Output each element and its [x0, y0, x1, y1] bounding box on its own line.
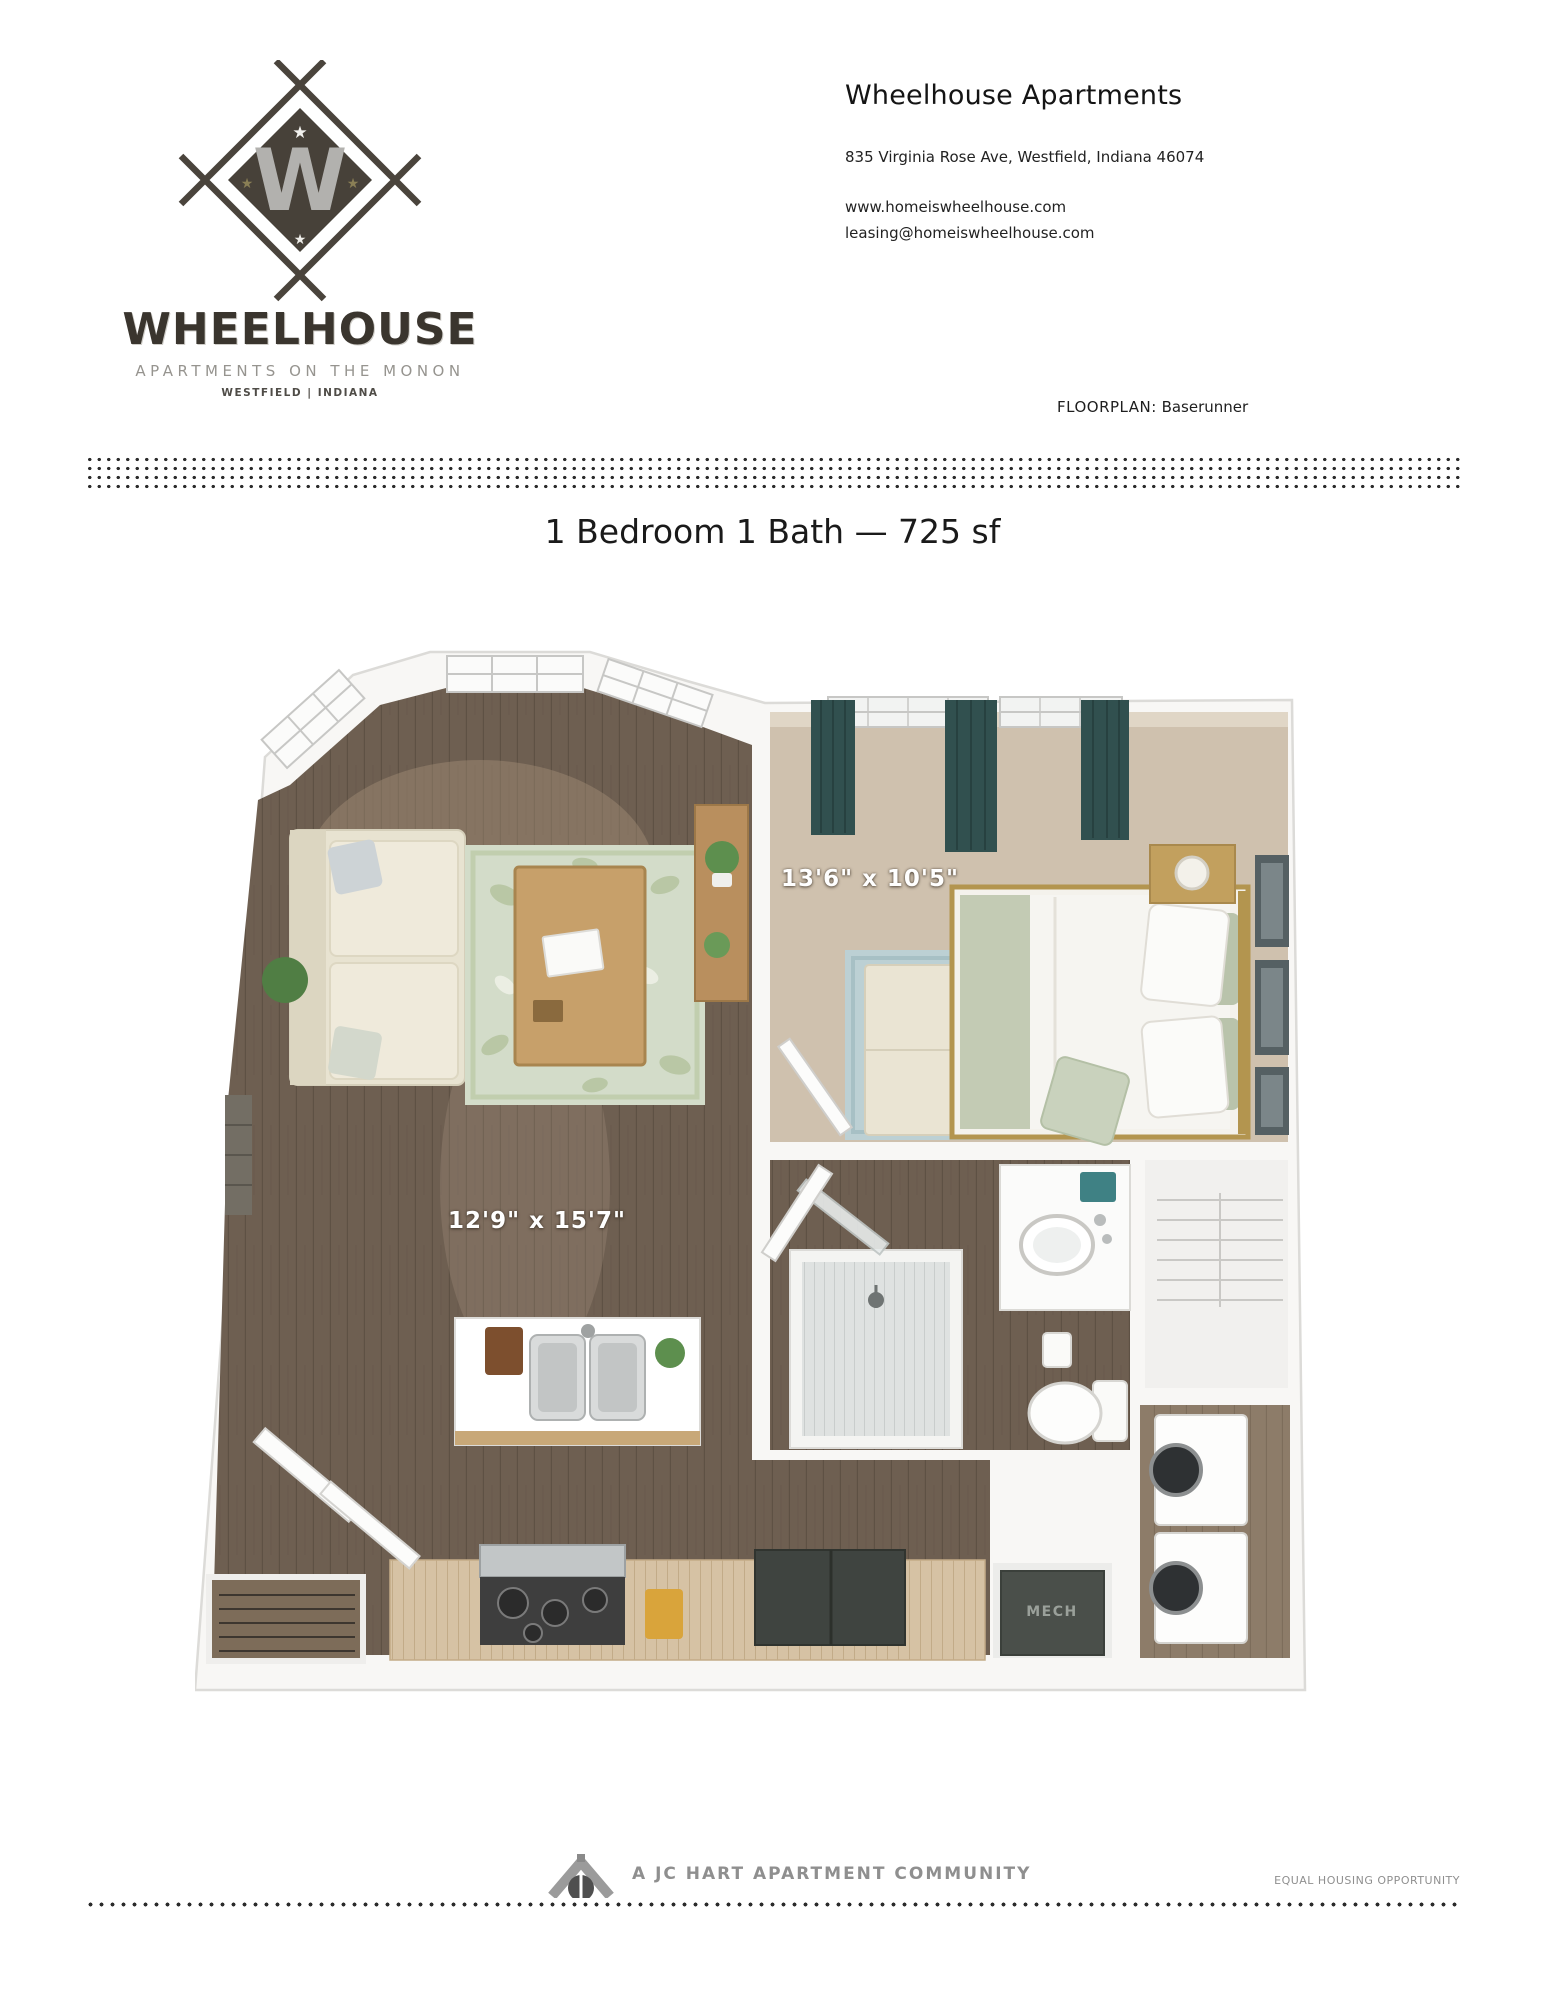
entry-closet: [209, 1577, 363, 1661]
property-address: 835 Virginia Rose Ave, Westfield, Indian…: [845, 148, 1204, 166]
wall-shelf: [225, 1095, 252, 1215]
shower: [790, 1250, 962, 1448]
floorplan-flyer-page: { "header": { "property_name": "Wheelhou…: [0, 0, 1545, 2000]
logo-location: WESTFIELD | INDIANA: [120, 387, 480, 399]
star-icon: ★: [294, 232, 307, 248]
floorplan-name-line: FLOORPLAN: Baserunner: [1057, 398, 1248, 416]
property-name: Wheelhouse Apartments: [845, 80, 1182, 111]
equal-housing-text: EQUAL HOUSING OPPORTUNITY: [1160, 1874, 1460, 1887]
star-icon: ★: [241, 176, 254, 192]
star-icon: ★: [292, 123, 307, 143]
kitchen-island: [455, 1318, 700, 1445]
island-plant: [655, 1338, 685, 1368]
living-dimension-label: 12'9" x 15'7": [412, 1208, 662, 1234]
footer-brand: A JC HART APARTMENT COMMUNITY: [548, 1848, 1031, 1900]
logo-monogram: W: [253, 131, 348, 231]
bay-window-center: [447, 656, 583, 692]
floorplan-rendering: [195, 645, 1310, 1700]
coffee-table: [515, 867, 645, 1065]
floorplan-name: Baserunner: [1162, 398, 1249, 416]
bedroom-dimension-label: 13'6" x 10'5": [745, 866, 995, 892]
console-cabinet: [695, 805, 748, 1001]
nightstand: [1150, 845, 1235, 903]
star-icon: ★: [347, 176, 360, 192]
toilet: [1029, 1381, 1127, 1443]
logo-wordmark: WHEELHOUSE: [120, 308, 480, 352]
refrigerator: [755, 1550, 905, 1645]
logo-diamond-mark: W ★ ★ ★ ★: [150, 60, 450, 302]
community-text: A JC HART APARTMENT COMMUNITY: [632, 1864, 1031, 1884]
closet-floor: [1145, 1160, 1288, 1388]
wall-art-frames: [1255, 855, 1289, 1135]
property-website: www.homeiswheelhouse.com: [845, 198, 1066, 216]
logo-tagline: APARTMENTS ON THE MONON: [120, 362, 480, 380]
unit-summary-title: 1 Bedroom 1 Bath — 725 sf: [0, 512, 1545, 551]
logo: W ★ ★ ★ ★ WHEELHOUSE APARTMENTS ON THE M…: [120, 60, 480, 399]
jchart-roof-icon: [548, 1850, 618, 1898]
dotted-divider-footer: [85, 1897, 1460, 1908]
sofa: [290, 830, 465, 1085]
counter-item: [645, 1589, 683, 1639]
dryer: [1151, 1533, 1247, 1643]
stove: [480, 1545, 625, 1645]
property-email: leasing@homeiswheelhouse.com: [845, 224, 1095, 242]
dotted-divider: [85, 453, 1460, 489]
toilet-paper-stand: [1043, 1333, 1071, 1367]
bathroom-vanity: [1000, 1165, 1130, 1310]
floor-plant: [262, 957, 308, 1003]
mech-room-label: MECH: [1001, 1604, 1103, 1620]
bedroom-bench: [865, 965, 955, 1135]
floorplan-svg: [195, 645, 1310, 1700]
bed: [952, 887, 1249, 1147]
floorplan-label: FLOORPLAN:: [1057, 398, 1157, 416]
washer: [1151, 1415, 1247, 1525]
